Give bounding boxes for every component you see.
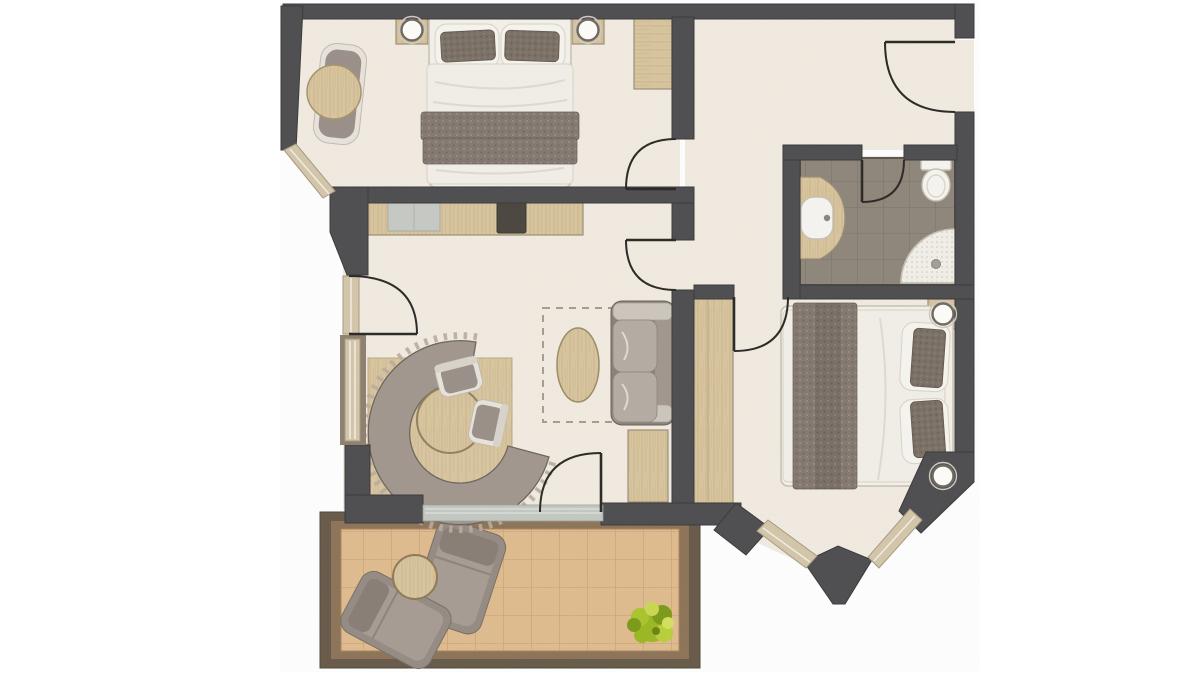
floor-plan-canvas xyxy=(0,0,1200,675)
floor-texture-overlay xyxy=(280,0,980,672)
floor-plan-stage xyxy=(0,0,1200,675)
